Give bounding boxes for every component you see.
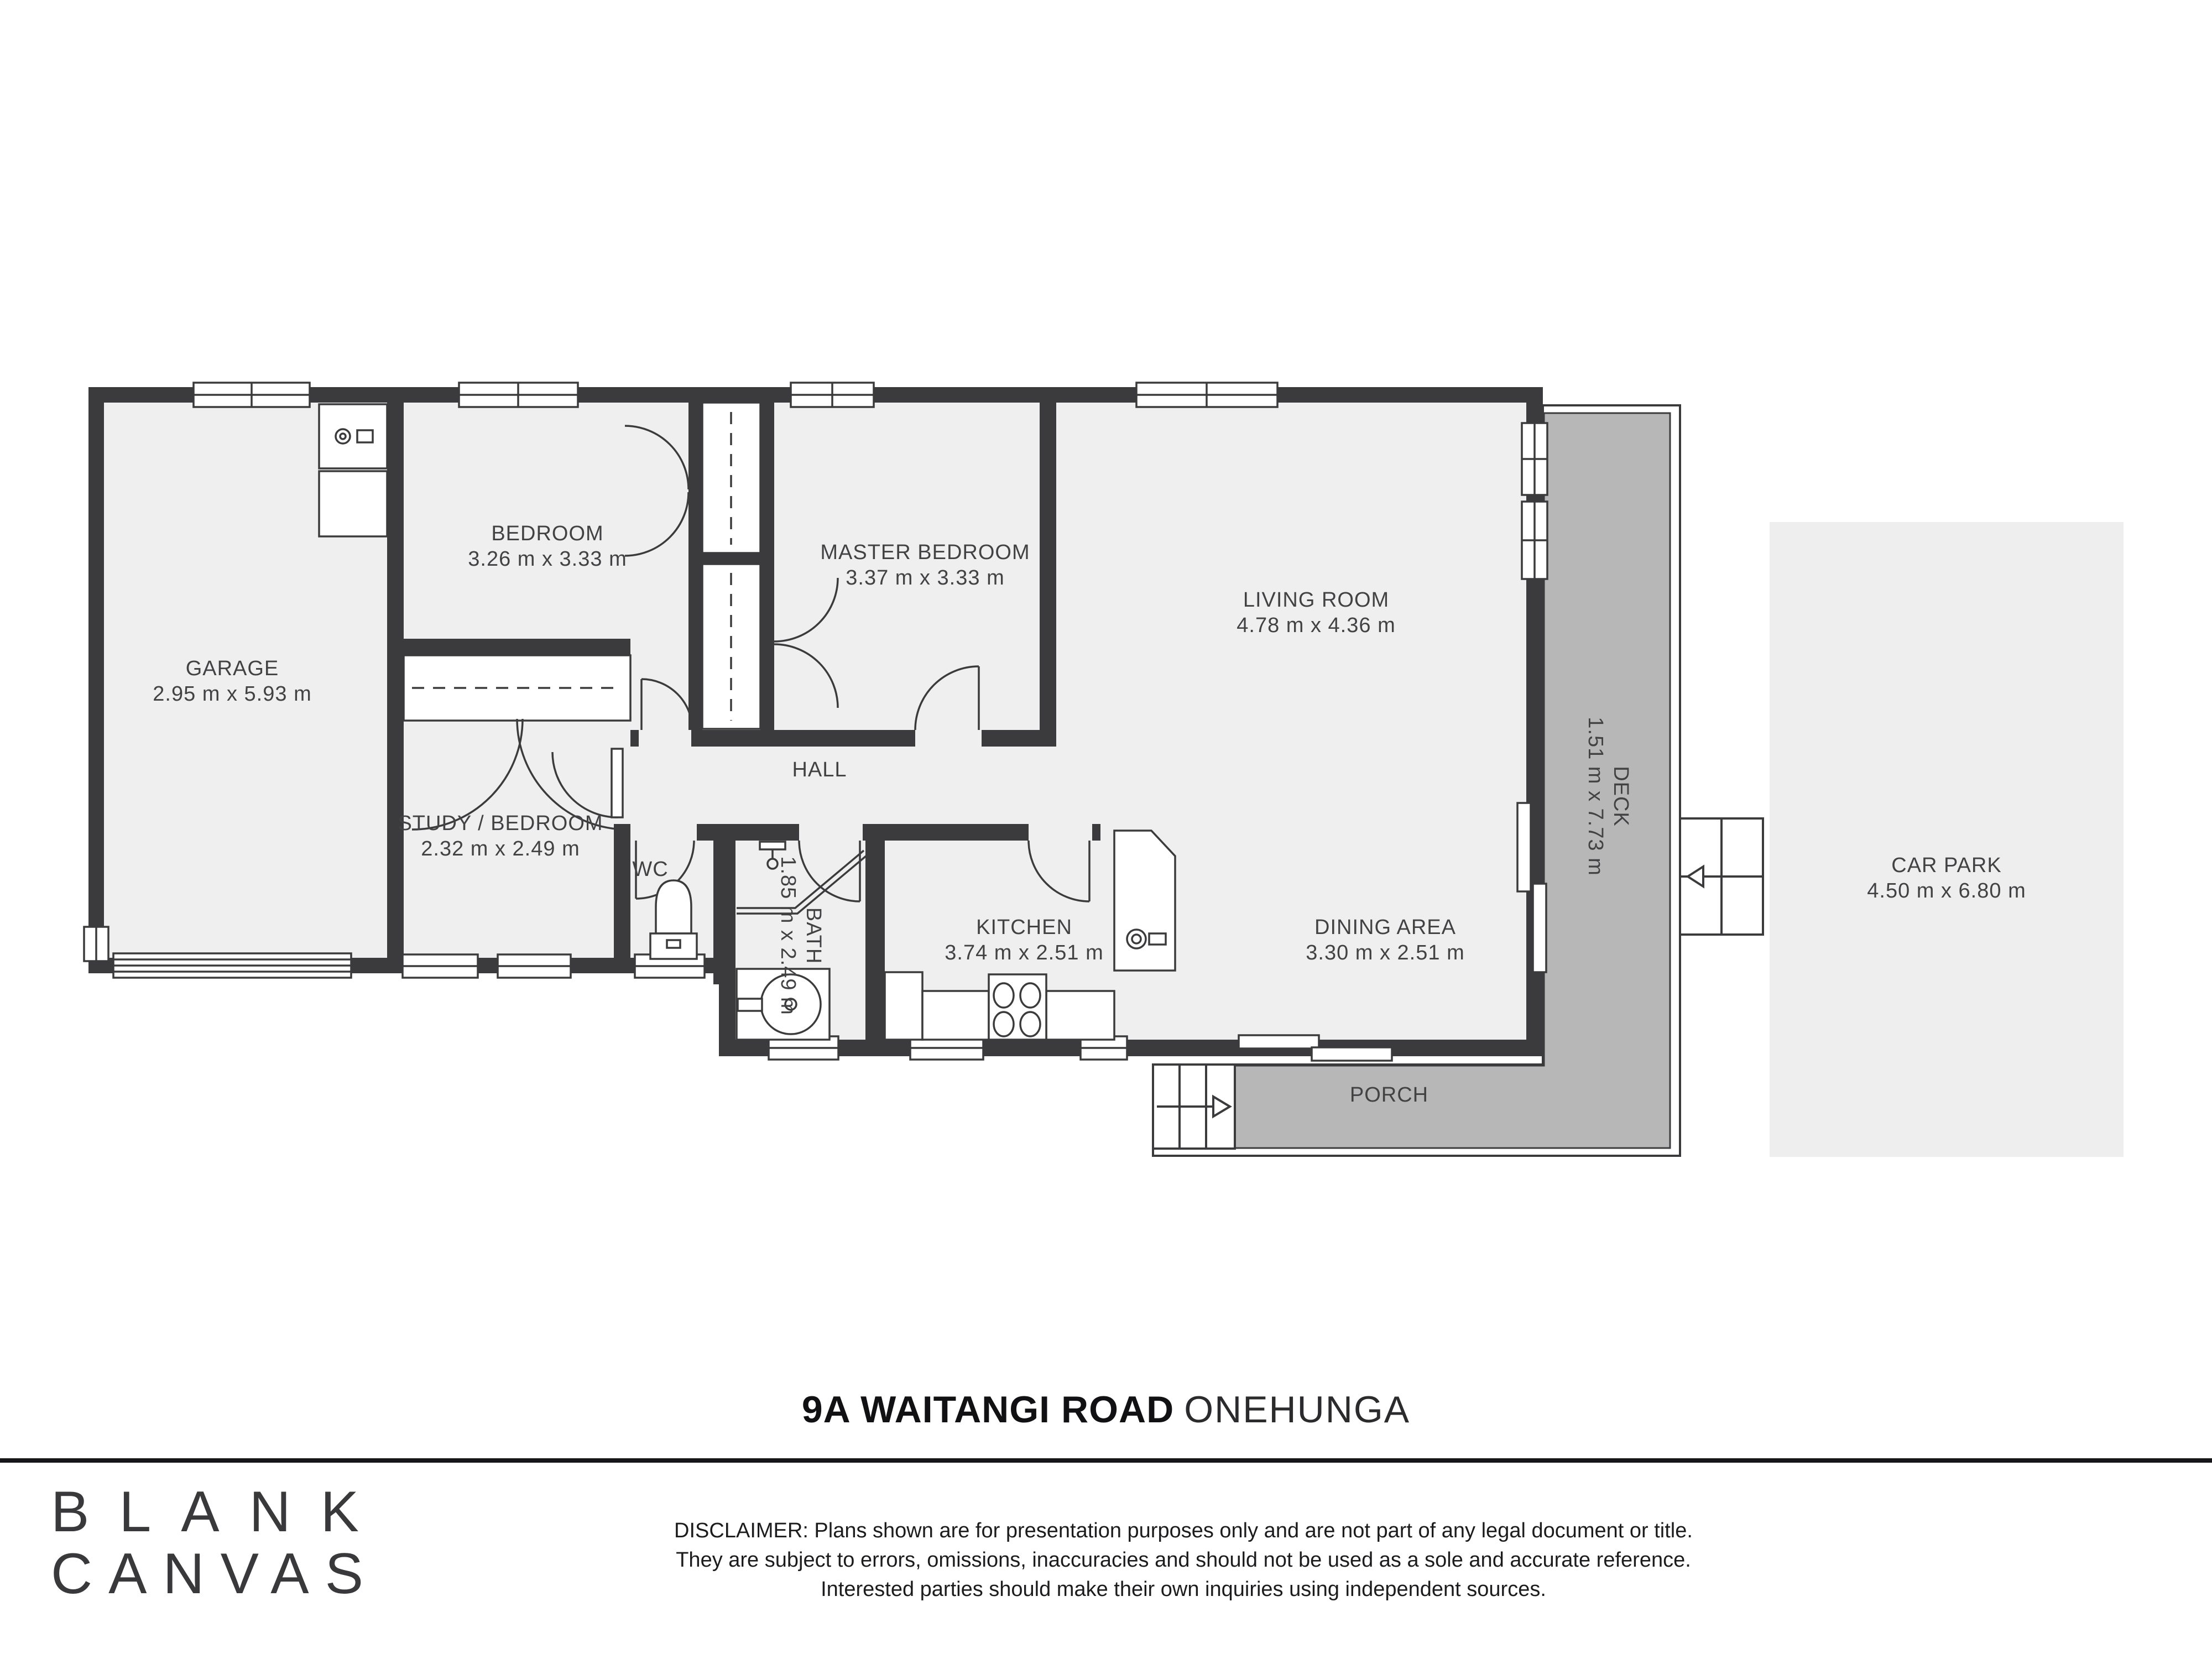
toilet-icon [650,880,697,959]
sliding-door-porch [1239,1035,1319,1048]
room-label-garage: GARAGE 2.95 m x 5.93 m [153,656,311,707]
disclaimer-text: DISCLAIMER: Plans shown are for presenta… [387,1516,1980,1604]
footer-divider [0,1458,2212,1463]
stove-icon [989,974,1046,1040]
room-label-bedroom: BEDROOM 3.26 m x 3.33 m [468,521,627,572]
room-label-kitchen: KITCHEN 3.74 m x 2.51 m [945,915,1103,966]
disclaimer-line1: DISCLAIMER: Plans shown are for presenta… [387,1516,1980,1546]
room-label-study-bedroom: STUDY / BEDROOM 2.32 m x 2.49 m [398,811,603,862]
island-sink-icon [1114,831,1175,971]
room-label-deck: DECK 1.51 m x 7.73 m [1583,717,1634,875]
blank-canvas-logo: BLANK CANVAS [51,1481,389,1605]
room-label-porch: PORCH [1350,1082,1428,1108]
floor-plan-page: GARAGE 2.95 m x 5.93 m BEDROOM 3.26 m x … [0,0,2212,1659]
room-label-living-room: LIVING ROOM 4.78 m x 4.36 m [1237,587,1395,638]
disclaimer-line2: They are subject to errors, omissions, i… [387,1546,1980,1575]
title-suburb: ONEHUNGA [1184,1389,1410,1431]
deck-steps [1680,818,1763,935]
garage-cupboard-icon [319,404,387,536]
page-title: 9A WAITANGI ROADONEHUNGA [0,1388,2212,1431]
disclaimer-line3: Interested parties should make their own… [387,1575,1980,1604]
title-address: 9A WAITANGI ROAD [802,1389,1174,1431]
room-label-wc: WC [632,857,668,882]
room-label-hall: HALL [792,757,847,782]
porch-steps [1153,1065,1235,1149]
study-door-leaf [612,749,623,817]
room-label-car-park: CAR PARK 4.50 m x 6.80 m [1867,853,2026,904]
logo-line1: BLANK [51,1481,389,1543]
room-label-bath: BATH 1.85 m x 2.49 m [775,856,826,1015]
room-label-dining-area: DINING AREA 3.30 m x 2.51 m [1306,915,1464,966]
room-label-master-bedroom: MASTER BEDROOM 3.37 m x 3.33 m [820,540,1030,591]
logo-line2: CANVAS [51,1543,389,1605]
car-park-area [1770,522,2124,1157]
sliding-door-deck [1517,803,1531,891]
